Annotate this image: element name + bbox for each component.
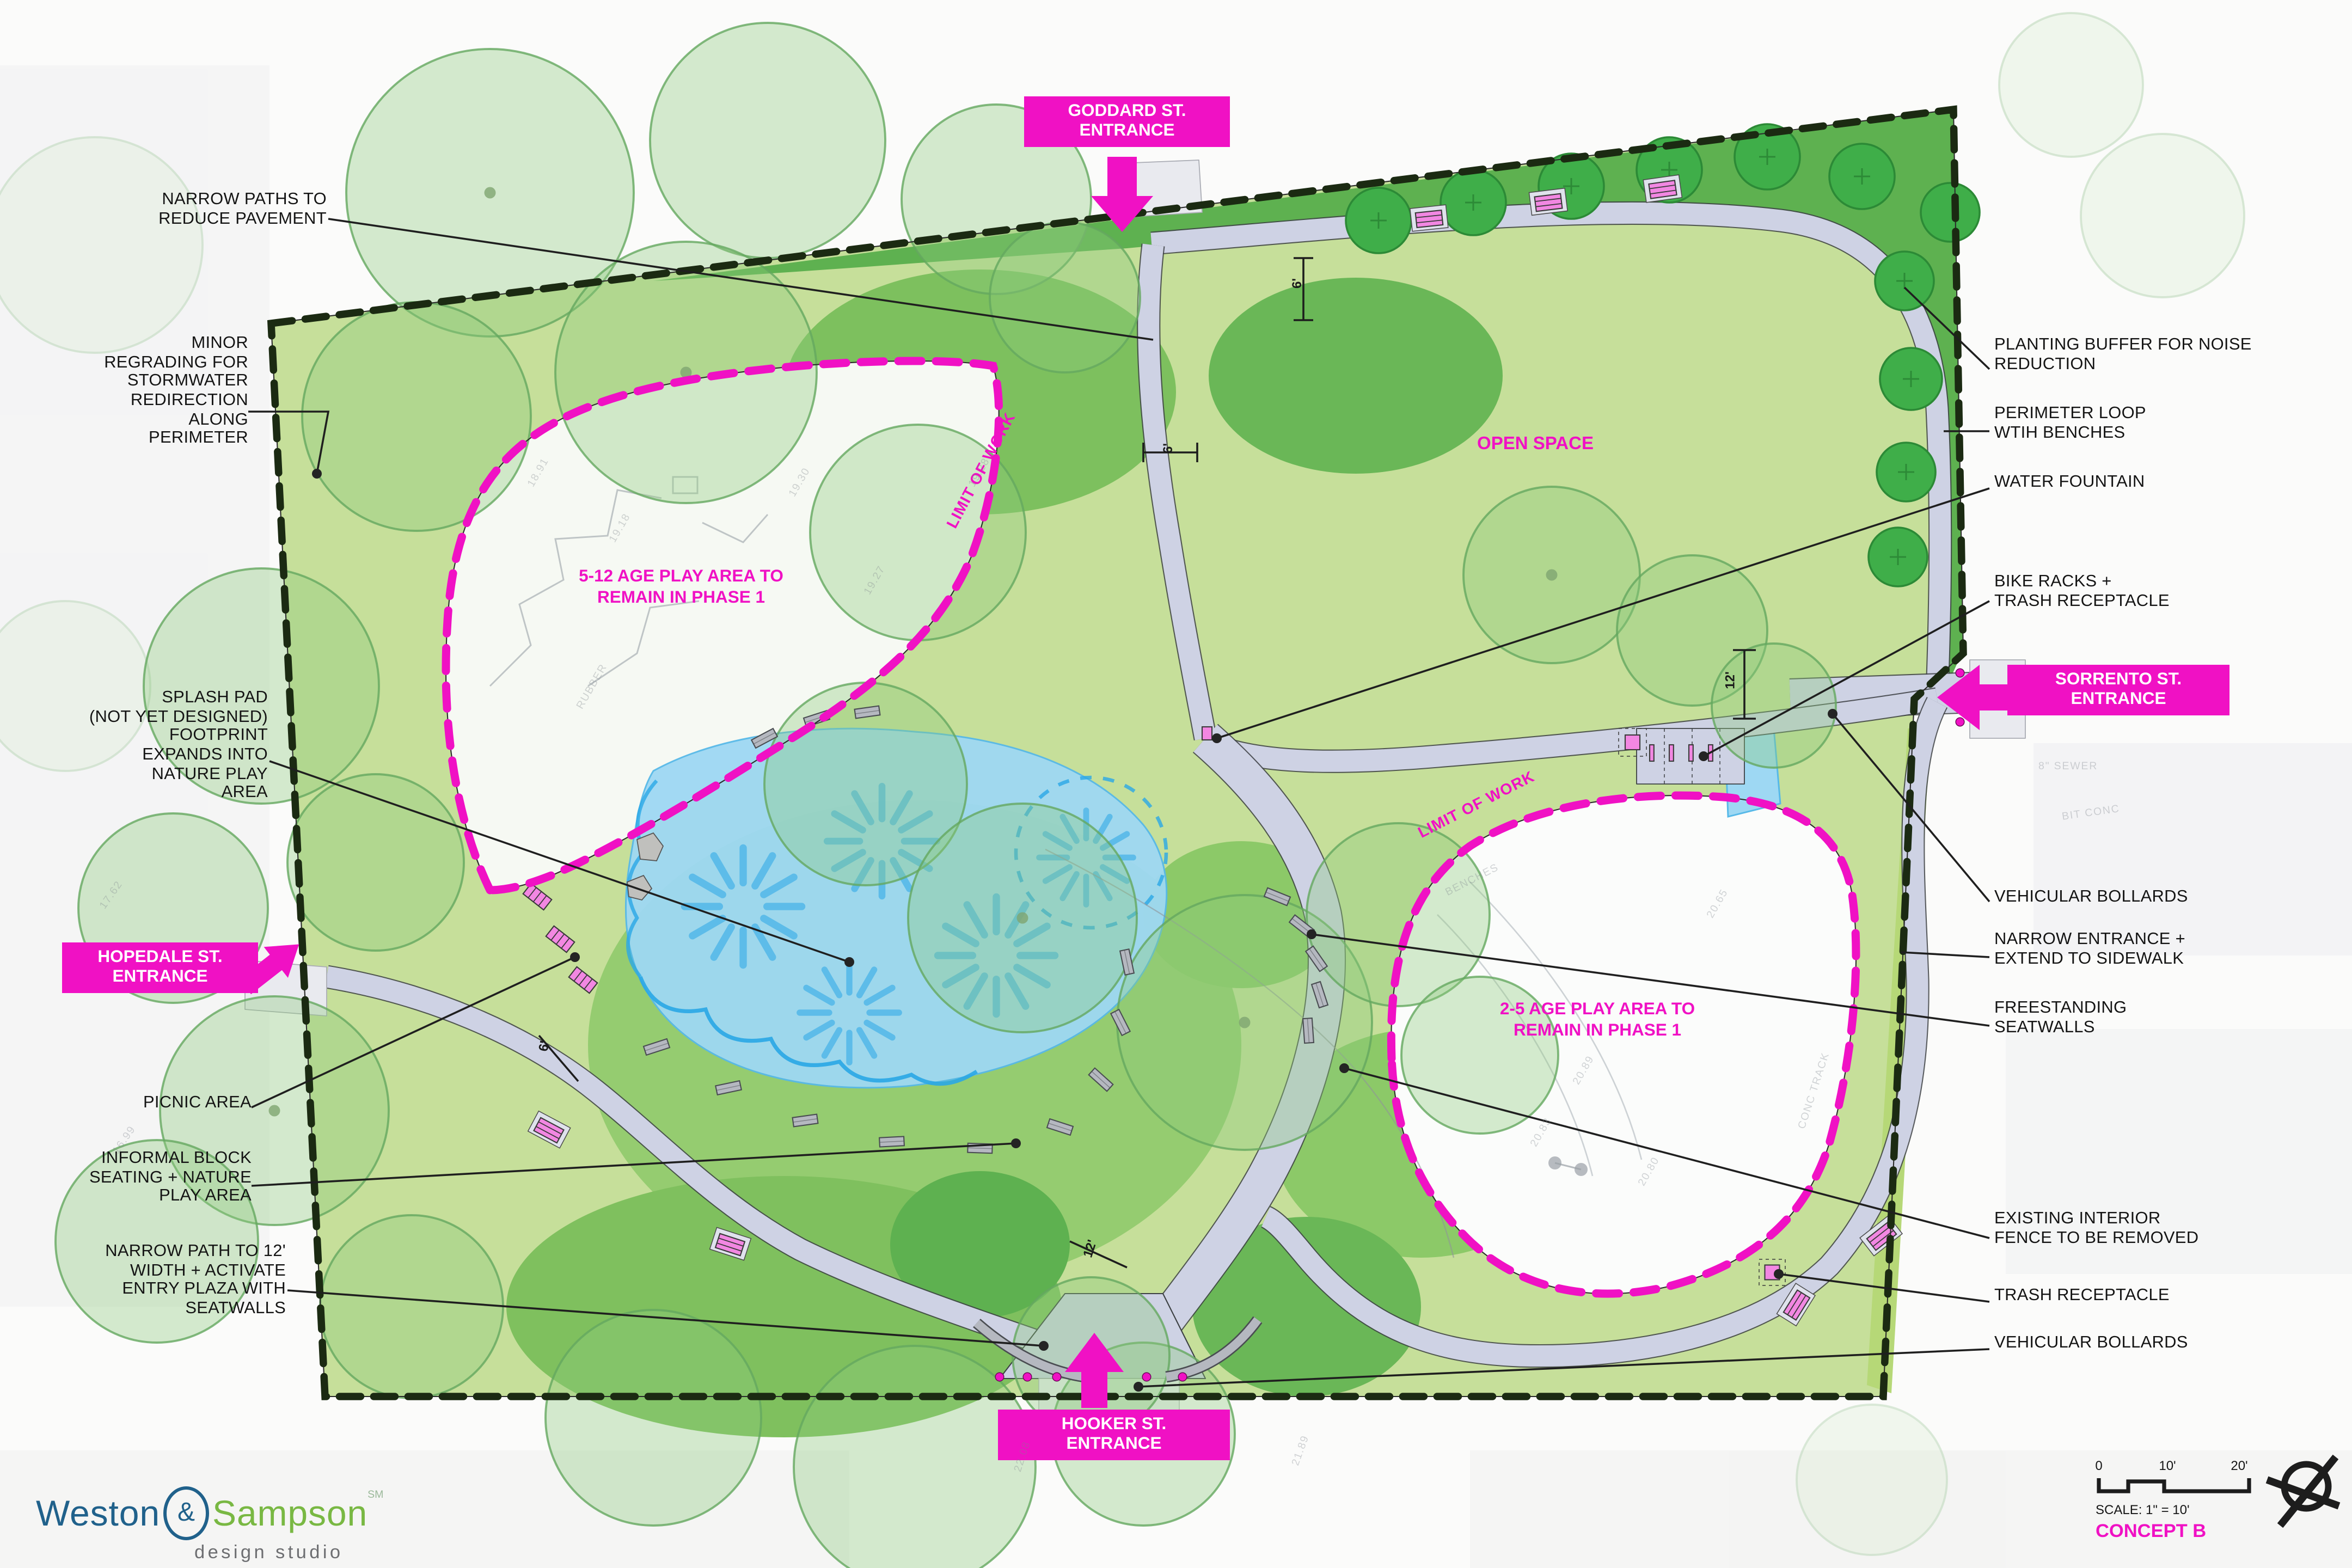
site-plan-graphic xyxy=(0,0,2352,1568)
callout-freestanding-seatwalls: FREESTANDING SEATWALLS xyxy=(1994,1000,2223,1038)
block-seat-icon xyxy=(879,1136,904,1147)
width-label: 12' xyxy=(1723,671,1738,689)
callout-vehicular-bollards-2: VEHICULAR BOLLARDS xyxy=(1994,1334,2272,1353)
callout-picnic-area: PICNIC AREA xyxy=(65,1094,252,1113)
ampersand-icon: & xyxy=(163,1486,209,1540)
callout-minor-regrading: MINOR REGRADING FOR STORMWATER REDIRECTI… xyxy=(29,335,248,449)
area-label-play-5-12: 5-12 AGE PLAY AREA TO REMAIN IN PHASE 1 xyxy=(539,567,823,609)
entrance-label-hopedale: HOPEDALE ST. ENTRANCE xyxy=(62,942,258,993)
north-arrow-icon xyxy=(2264,1450,2345,1532)
survey-mark: 8" SEWER xyxy=(2038,761,2098,773)
entrance-label-hooker: HOOKER ST. ENTRANCE xyxy=(998,1410,1230,1460)
callout-vehicular-bollards-1: VEHICULAR BOLLARDS xyxy=(1994,889,2272,908)
callout-planting-buffer: PLANTING BUFFER FOR NOISE REDUCTION xyxy=(1994,336,2329,375)
scale-tick: 0 xyxy=(2095,1459,2102,1473)
concept-title: CONCEPT B xyxy=(2096,1522,2206,1542)
callout-water-fountain: WATER FOUNTAIN xyxy=(1994,474,2239,493)
callout-trash-receptacle: TRASH RECEPTACLE xyxy=(1994,1287,2256,1306)
callout-splash-pad: SPLASH PAD (NOT YET DESIGNED) FOOTPRINT … xyxy=(13,689,268,803)
scale-text: SCALE: 1" = 10' xyxy=(2096,1503,2292,1517)
entrance-label-sorrento: SORRENTO ST. ENTRANCE xyxy=(2007,665,2229,715)
width-label: 6' xyxy=(1290,278,1304,289)
bench-icon xyxy=(1643,175,1682,203)
concept-plan-sheet: NARROW PATHS TO REDUCE PAVEMENT MINOR RE… xyxy=(0,0,2352,1568)
width-label: 6' xyxy=(1161,443,1175,454)
bench-icon xyxy=(1410,205,1448,231)
callout-perimeter-loop: PERIMETER LOOP WTIH BENCHES xyxy=(1994,405,2239,443)
bench-icon xyxy=(1529,188,1568,216)
logo-servicemark: SM xyxy=(367,1490,383,1501)
scale-tick: 10' xyxy=(2159,1459,2176,1473)
area-label-play-2-5: 2-5 AGE PLAY AREA TO REMAIN IN PHASE 1 xyxy=(1447,1000,1748,1042)
scale-tick: 20' xyxy=(2231,1459,2247,1473)
callout-bike-racks: BIKE RACKS + TRASH RECEPTACLE xyxy=(1994,573,2256,611)
callout-narrow-paths: NARROW PATHS TO REDUCE PAVEMENT xyxy=(59,191,327,229)
callout-existing-fence: EXISTING INTERIOR FENCE TO BE REMOVED xyxy=(1994,1210,2272,1248)
scale-bar-icon xyxy=(2096,1475,2259,1494)
entrance-label-goddard: GODDARD ST. ENTRANCE xyxy=(1024,96,1230,146)
firm-logo: Weston & Sampson SM design studio xyxy=(36,1486,383,1563)
callout-informal-block: INFORMAL BLOCK SEATING + NATURE PLAY ARE… xyxy=(33,1150,252,1207)
seatwall-icon xyxy=(1303,1018,1314,1043)
area-label-open-space: OPEN SPACE xyxy=(1441,434,1630,456)
trash-receptacle-icon xyxy=(1625,735,1640,750)
callout-narrow-path-12: NARROW PATH TO 12' WIDTH + ACTIVATE ENTR… xyxy=(20,1243,286,1319)
scale-bar: 0 10' 20' SCALE: 1" = 10' xyxy=(2096,1459,2292,1517)
callout-narrow-entrance: NARROW ENTRANCE + EXTEND TO SIDEWALK xyxy=(1994,931,2280,969)
water-fountain-icon xyxy=(1202,727,1212,740)
logo-sampson: Sampson xyxy=(212,1492,367,1535)
logo-tagline: design studio xyxy=(194,1543,383,1563)
logo-weston: Weston xyxy=(36,1492,160,1535)
